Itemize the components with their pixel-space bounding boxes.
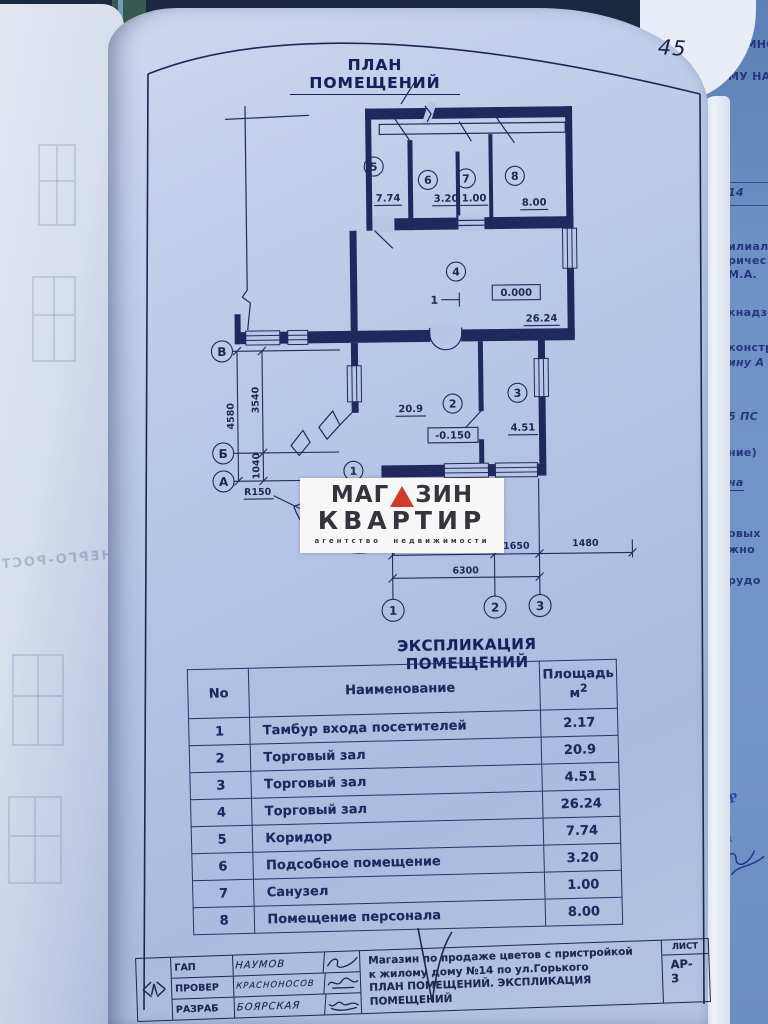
- room-2-area: 20.9: [398, 404, 423, 415]
- fragment-text: М.А.: [728, 268, 757, 281]
- signer-role: ПРОВЕР: [172, 977, 235, 999]
- cell-no: 1: [189, 717, 251, 745]
- explication-rows: 1Тамбур входа посетителей2.172Торговый з…: [189, 708, 623, 934]
- axis-letter-b: Б: [219, 447, 228, 461]
- signer-name: КРАСНОНОСОВ: [233, 973, 325, 996]
- cell-area: 4.51: [542, 762, 619, 791]
- ghost-window: [32, 276, 76, 362]
- photo-of-drawing-page: { "page": { "number": "45", "plan_title"…: [0, 0, 768, 1024]
- room-7-area: 1.00: [462, 193, 487, 204]
- axis-number-2: 2: [491, 601, 500, 615]
- ghost-window: [12, 654, 64, 746]
- cell-name: Помещение персонала: [255, 899, 546, 933]
- dim-1480: 1480: [572, 538, 599, 549]
- room-circle-7: 7: [462, 172, 470, 185]
- fragment-text: констр: [728, 341, 768, 354]
- ghost-window: [8, 796, 62, 884]
- watermark-word1-suffix: ЗИН: [415, 484, 473, 507]
- sheet-cell: ЛИСТ АР- 3: [661, 939, 710, 1003]
- axis-letter-v: В: [217, 345, 226, 359]
- drawing-sheet: 45 ПЛАН ПОМЕЩЕНИЙ: [108, 8, 708, 1024]
- room-4-area: 26.24: [526, 313, 558, 324]
- watermark-tagline: агентство недвижимости: [300, 537, 504, 545]
- fragment-text: 5 ПС: [728, 410, 758, 423]
- fragment-text: ричес: [728, 254, 767, 267]
- dim-6300: 6300: [452, 565, 479, 576]
- watermark-line1: МАГ ЗИН: [300, 483, 504, 507]
- signer-name: БОЯРСКАЯ: [234, 994, 326, 1017]
- dim-4580: 4580: [226, 403, 237, 430]
- room-6-area: 3.20: [434, 194, 459, 205]
- watermark-line2: КВАРТИР: [300, 507, 504, 535]
- dim-1040: 1040: [251, 452, 262, 479]
- signature: [325, 993, 361, 1014]
- fragment-text: рудо: [728, 574, 761, 587]
- elevation-room4: 0.000: [500, 288, 532, 299]
- room-circle-3: 3: [514, 387, 522, 400]
- room-circle-5: 5: [370, 161, 378, 174]
- room-3-area: 4.51: [511, 423, 536, 434]
- sheet-number: АР- 3: [662, 954, 710, 1003]
- cell-area: 20.9: [541, 735, 618, 764]
- sheet-label: ЛИСТ: [662, 939, 708, 956]
- plan-window-symbols: [244, 228, 579, 480]
- watermark-logo: МАГ ЗИН КВАРТИР агентство недвижимости: [300, 478, 504, 553]
- ghost-window: [38, 144, 76, 226]
- cell-no: 6: [192, 852, 254, 880]
- room-circle-2: 2: [449, 398, 457, 411]
- triangle-icon: [390, 486, 414, 507]
- cell-area: 8.00: [545, 897, 622, 926]
- signer-role: ГАП: [171, 956, 234, 978]
- design-firm-logo: [136, 958, 173, 1021]
- cell-area: 2.17: [541, 708, 618, 737]
- cell-no: 5: [191, 825, 253, 853]
- fragment-text: жно: [728, 543, 755, 556]
- dim-1650: 1650: [503, 541, 530, 552]
- fragment-text: ние): [728, 446, 757, 459]
- direction-marker: 1: [430, 294, 438, 307]
- cell-area: 3.20: [544, 843, 621, 872]
- cell-area: 26.24: [543, 789, 620, 818]
- axis-letter-a: А: [219, 475, 229, 489]
- page-number: 45: [657, 35, 687, 61]
- header-no: No: [187, 668, 250, 718]
- room-5-area: 7.74: [376, 193, 401, 204]
- fragment-text: 14: [728, 186, 744, 199]
- signer-name: НАУМОВ: [233, 952, 325, 975]
- signature: [325, 972, 361, 993]
- radius-label: R150: [244, 487, 272, 498]
- watermark-word1-prefix: МАГ: [331, 484, 389, 507]
- left-book-page: ЭНЕРГО-РОСТ: [0, 4, 124, 1024]
- room-circle-4: 4: [452, 266, 460, 279]
- room-circle-6: 6: [424, 174, 432, 187]
- cell-no: 8: [193, 906, 255, 934]
- fragment-text: илиал: [728, 240, 768, 253]
- document-title: Магазин по продаже цветов с пристройкой …: [360, 941, 663, 1013]
- header-area: Площадь м2: [539, 659, 617, 710]
- axis-number-1: 1: [389, 604, 398, 618]
- signature: [324, 951, 360, 972]
- room-8-area: 8.00: [522, 197, 547, 208]
- fragment-text: кнадзо: [728, 306, 768, 319]
- header-name: Наименование: [249, 661, 541, 717]
- cell-no: 4: [191, 798, 253, 826]
- cell-no: 7: [192, 879, 254, 907]
- cell-area: 1.00: [545, 870, 622, 899]
- cell-no: 3: [190, 771, 252, 799]
- explication-table: No Наименование Площадь м2 1Тамбур входа…: [187, 659, 623, 935]
- elevation-room2: -0.150: [435, 430, 471, 441]
- signer-rows: ГАП НАУМОВ ПРОВЕР КРАСНОНОСОВ РАЗРАБ БОЯ…: [171, 951, 362, 1020]
- room-circle-1: 1: [350, 465, 358, 478]
- fragment-text: овых: [728, 527, 761, 540]
- fragment-text: на: [728, 476, 744, 491]
- dim-3540: 3540: [250, 386, 261, 413]
- signer-role: РАЗРАБ: [173, 998, 236, 1020]
- handwritten-checkmark: [408, 926, 458, 1010]
- axis-number-3: 3: [536, 599, 545, 613]
- fragment-text: ину А: [728, 356, 764, 369]
- room-circle-8: 8: [511, 170, 519, 183]
- cell-area: 7.74: [543, 816, 620, 845]
- ghost-bleedthrough-text: ЭНЕРГО-РОСТ: [0, 547, 124, 573]
- cell-no: 2: [189, 744, 251, 772]
